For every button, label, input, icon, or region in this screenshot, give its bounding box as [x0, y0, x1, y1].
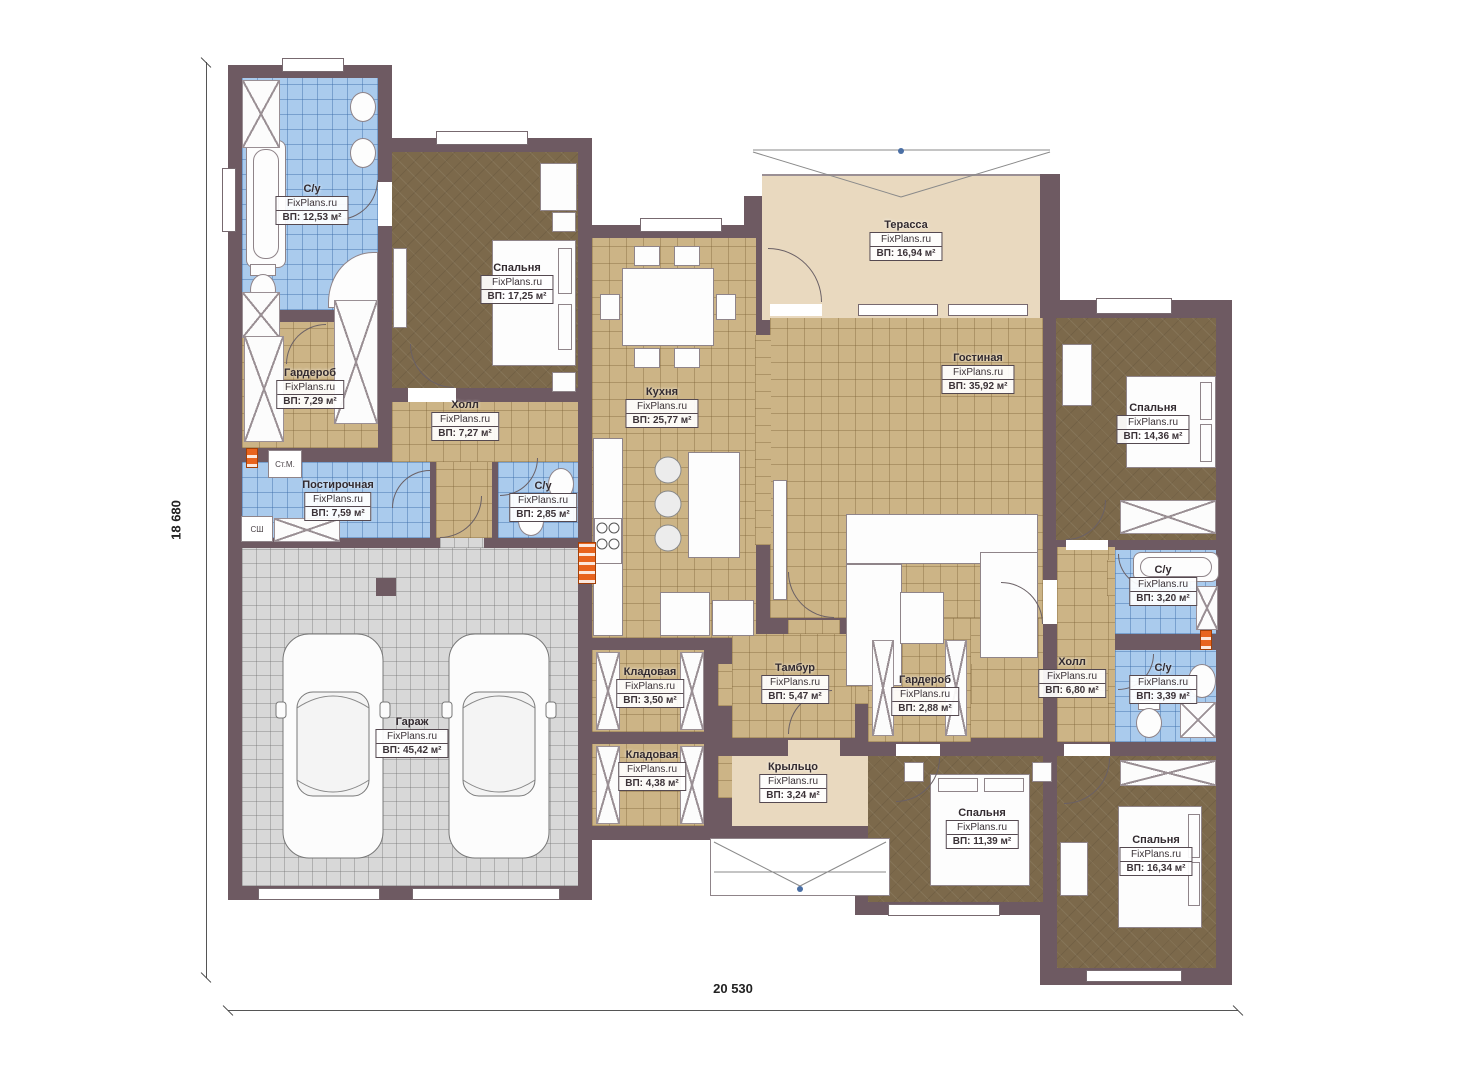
- kitchen-cabinet: [660, 592, 710, 636]
- closet: [242, 292, 280, 338]
- window: [436, 131, 528, 145]
- room-area: ВП: 25,77 м²: [626, 414, 697, 427]
- room-area: ВП: 4,38 м²: [619, 777, 685, 790]
- chair: [674, 348, 700, 368]
- room-name: Гостиная: [941, 352, 1014, 364]
- door-opening: [1108, 668, 1115, 704]
- dryer-label: СШ: [250, 525, 263, 534]
- room-area: ВП: 7,27 м²: [432, 427, 498, 440]
- door-opening: [971, 664, 985, 704]
- dimension-line-vertical: [206, 62, 207, 978]
- chair: [634, 246, 660, 266]
- room-name: Гараж: [375, 716, 448, 728]
- radiator-icon: [246, 448, 258, 468]
- watermark: FixPlans.ru: [277, 381, 343, 395]
- room-name: Тамбур: [761, 662, 829, 674]
- wall: [1040, 174, 1060, 304]
- closet: [1196, 586, 1218, 630]
- room-area: ВП: 3,20 м²: [1130, 592, 1196, 605]
- watermark: FixPlans.ru: [626, 400, 697, 414]
- chair: [634, 348, 660, 368]
- wall: [744, 196, 764, 234]
- room-area: ВП: 2,85 м²: [510, 508, 576, 521]
- room-name: С/у: [509, 480, 577, 492]
- room-label-wardrobe-2: Гардероб FixPlans.ruВП: 2,88 м²: [891, 674, 959, 716]
- room-area: ВП: 17,25 м²: [481, 290, 552, 303]
- dryer-cabinet: СШ: [241, 516, 273, 542]
- watermark: FixPlans.ru: [617, 680, 683, 694]
- door-opening: [718, 664, 732, 706]
- room-label-bedroom-1: Спальня FixPlans.ruВП: 17,25 м²: [480, 262, 553, 304]
- room-name: Кухня: [625, 386, 698, 398]
- window: [640, 218, 722, 232]
- kitchen-cabinet: [712, 600, 754, 636]
- nightstand: [552, 212, 576, 232]
- window: [282, 58, 344, 72]
- watermark: FixPlans.ru: [305, 493, 371, 507]
- room-label-hall-1: Холл FixPlans.ruВП: 7,27 м²: [431, 399, 499, 441]
- room-name: Постирочная: [302, 479, 373, 491]
- nightstand: [552, 372, 576, 392]
- window: [948, 304, 1028, 316]
- room-name: Кладовая: [618, 749, 686, 761]
- room-label-bathroom-2: С/у FixPlans.ruВП: 2,85 м²: [509, 480, 577, 522]
- wardrobe-closet: [1120, 760, 1216, 786]
- closet: [274, 518, 340, 542]
- door-opening: [788, 620, 840, 634]
- room-label-kitchen: Кухня FixPlans.ruВП: 25,77 м²: [625, 386, 698, 428]
- window: [1086, 970, 1182, 982]
- room-label-laundry: Постирочная FixPlans.ruВП: 7,59 м²: [302, 479, 373, 521]
- watermark: FixPlans.ru: [1120, 848, 1191, 862]
- toilet: [1136, 708, 1162, 738]
- room-area: ВП: 2,88 м²: [892, 702, 958, 715]
- door-opening: [1064, 744, 1110, 756]
- room-label-living-room: Гостиная FixPlans.ruВП: 35,92 м²: [941, 352, 1014, 394]
- door-opening: [896, 744, 940, 756]
- room-name: С/у: [1129, 662, 1197, 674]
- garage-door: [258, 888, 380, 900]
- room-area: ВП: 12,53 м²: [276, 211, 347, 224]
- chair: [716, 294, 736, 320]
- room-name: Гардероб: [276, 367, 344, 379]
- floor-plan: Ст.М. СШ: [0, 0, 1474, 1080]
- closet: [596, 746, 620, 824]
- sink: [350, 138, 376, 168]
- room-name: Крыльцо: [759, 761, 827, 773]
- watermark: FixPlans.ru: [1130, 578, 1196, 592]
- stove: [594, 518, 622, 564]
- door-opening: [788, 740, 840, 756]
- closet: [242, 80, 280, 148]
- room-area: ВП: 45,42 м²: [376, 744, 447, 757]
- watermark: FixPlans.ru: [760, 775, 826, 789]
- garage-door: [412, 888, 560, 900]
- pillow: [558, 304, 572, 350]
- chair: [674, 246, 700, 266]
- pillow: [1200, 382, 1212, 420]
- room-name: Спальня: [480, 262, 553, 274]
- room-area: ВП: 16,34 м²: [1120, 862, 1191, 875]
- room-label-porch: Крыльцо FixPlans.ruВП: 3,24 м²: [759, 761, 827, 803]
- room-name: Спальня: [1116, 402, 1189, 414]
- porch-steps: [710, 838, 890, 896]
- kitchen-island: [688, 452, 740, 558]
- room-area: ВП: 3,39 м²: [1130, 690, 1196, 703]
- room-area: ВП: 7,29 м²: [277, 395, 343, 408]
- room-area: ВП: 7,59 м²: [305, 507, 371, 520]
- door-opening: [1043, 580, 1057, 624]
- room-label-garage: Гараж FixPlans.ruВП: 45,42 м²: [375, 716, 448, 758]
- room-label-bathroom-3: С/у FixPlans.ruВП: 3,20 м²: [1129, 564, 1197, 606]
- dining-table: [622, 268, 714, 346]
- watermark: FixPlans.ru: [376, 730, 447, 744]
- watermark: FixPlans.ru: [1039, 670, 1105, 684]
- door-opening: [770, 304, 822, 316]
- watermark: FixPlans.ru: [619, 763, 685, 777]
- floor-kitchen-living-opening: [755, 335, 771, 545]
- room-label-vestibule: Тамбур FixPlans.ruВП: 5,47 м²: [761, 662, 829, 704]
- window: [222, 168, 236, 232]
- door-opening: [378, 182, 392, 226]
- pillow: [984, 778, 1024, 792]
- room-name: Кладовая: [616, 666, 684, 678]
- closet-cabinet: [393, 248, 407, 328]
- room-label-bedroom-2: Спальня FixPlans.ruВП: 14,36 м²: [1116, 402, 1189, 444]
- room-name: С/у: [275, 183, 348, 195]
- wardrobe-closet: [1120, 500, 1216, 534]
- closet: [1180, 702, 1216, 738]
- window: [1096, 298, 1172, 314]
- room-name: Спальня: [946, 807, 1019, 819]
- garage-drain: [376, 578, 396, 596]
- watermark: FixPlans.ru: [947, 821, 1018, 835]
- watermark: FixPlans.ru: [481, 276, 552, 290]
- room-label-storage-2: Кладовая FixPlans.ruВП: 4,38 м²: [618, 749, 686, 791]
- watermark: FixPlans.ru: [892, 688, 958, 702]
- room-area: ВП: 11,39 м²: [947, 835, 1018, 848]
- wardrobe-cabinet: [540, 163, 577, 211]
- room-area: ВП: 3,50 м²: [617, 694, 683, 707]
- watermark: FixPlans.ru: [942, 366, 1013, 380]
- radiator-icon: [1200, 630, 1212, 650]
- coffee-table: [900, 592, 944, 644]
- room-name: С/у: [1129, 564, 1197, 576]
- watermark: FixPlans.ru: [1117, 416, 1188, 430]
- room-area: ВП: 16,94 м²: [870, 247, 941, 260]
- pillow: [938, 778, 978, 792]
- tv-stand: [773, 480, 787, 600]
- room-area: ВП: 3,24 м²: [760, 789, 826, 802]
- room-area: ВП: 14,36 м²: [1117, 430, 1188, 443]
- radiator-icon: [578, 542, 596, 584]
- room-label-hall-2: Холл FixPlans.ruВП: 6,80 м²: [1038, 656, 1106, 698]
- window: [888, 904, 1000, 916]
- door-opening: [718, 756, 732, 798]
- room-area: ВП: 6,80 м²: [1039, 684, 1105, 697]
- pillow: [1200, 424, 1212, 462]
- watermark: FixPlans.ru: [510, 494, 576, 508]
- desk: [1062, 344, 1092, 406]
- chair: [600, 294, 620, 320]
- room-area: ВП: 35,92 м²: [942, 380, 1013, 393]
- room-label-bedroom-3: Спальня FixPlans.ruВП: 11,39 м²: [946, 807, 1019, 849]
- window: [858, 304, 938, 316]
- room-label-bedroom-4: Спальня FixPlans.ruВП: 16,34 м²: [1119, 834, 1192, 876]
- room-label-storage-1: Кладовая FixPlans.ruВП: 3,50 м²: [616, 666, 684, 708]
- washing-machine: Ст.М.: [268, 450, 302, 478]
- watermark: FixPlans.ru: [762, 676, 828, 690]
- room-label-terrace: Терасса FixPlans.ruВП: 16,94 м²: [869, 219, 942, 261]
- watermark: FixPlans.ru: [1130, 676, 1196, 690]
- door-opening: [440, 538, 484, 548]
- room-label-wardrobe-1: Гардероб FixPlans.ruВП: 7,29 м²: [276, 367, 344, 409]
- door-opening: [1107, 560, 1115, 596]
- watermark: FixPlans.ru: [276, 197, 347, 211]
- room-name: Спальня: [1119, 834, 1192, 846]
- room-area: ВП: 5,47 м²: [762, 690, 828, 703]
- room-name: Гардероб: [891, 674, 959, 686]
- dimension-line-horizontal: [228, 1010, 1238, 1011]
- door-opening: [1066, 540, 1108, 550]
- dimension-label-width: 20 530: [713, 981, 753, 996]
- dimension-label-height: 18 680: [169, 500, 184, 540]
- washing-machine-label: Ст.М.: [275, 460, 295, 469]
- room-label-bathroom-4: С/у FixPlans.ruВП: 3,39 м²: [1129, 662, 1197, 704]
- watermark: FixPlans.ru: [432, 413, 498, 427]
- room-name: Терасса: [869, 219, 942, 231]
- nightstand: [1032, 762, 1052, 782]
- desk: [1060, 842, 1088, 896]
- watermark: FixPlans.ru: [870, 233, 941, 247]
- room-name: Холл: [431, 399, 499, 411]
- pillow: [558, 248, 572, 294]
- room-name: Холл: [1038, 656, 1106, 668]
- sink: [350, 92, 376, 122]
- room-label-bathroom-1: С/у FixPlans.ruВП: 12,53 м²: [275, 183, 348, 225]
- roof-node-icon: [898, 148, 904, 154]
